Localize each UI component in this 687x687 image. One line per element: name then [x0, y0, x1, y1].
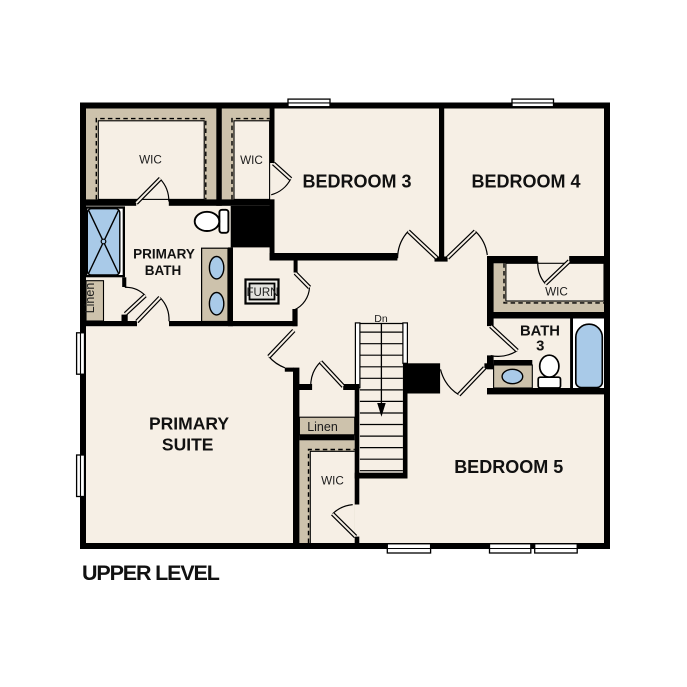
svg-text:WIC: WIC — [240, 154, 263, 167]
svg-text:Dn: Dn — [374, 313, 388, 325]
svg-text:BEDROOM 3: BEDROOM 3 — [302, 172, 411, 192]
svg-text:WIC: WIC — [545, 285, 568, 298]
svg-text:BATH: BATH — [145, 263, 182, 278]
svg-text:SUITE: SUITE — [162, 435, 214, 455]
svg-text:UPPER LEVEL: UPPER LEVEL — [82, 561, 220, 585]
svg-text:BEDROOM 5: BEDROOM 5 — [454, 457, 563, 477]
svg-text:WIC: WIC — [321, 475, 344, 488]
svg-text:WIC: WIC — [139, 153, 162, 166]
svg-text:BEDROOM 4: BEDROOM 4 — [471, 172, 580, 192]
svg-text:PRIMARY: PRIMARY — [133, 246, 195, 261]
svg-text:3: 3 — [536, 339, 544, 355]
svg-text:FURN: FURN — [247, 287, 279, 299]
svg-text:PRIMARY: PRIMARY — [149, 414, 229, 434]
svg-text:Linen: Linen — [83, 283, 97, 314]
svg-text:BATH: BATH — [520, 324, 560, 340]
svg-text:Linen: Linen — [307, 420, 338, 434]
